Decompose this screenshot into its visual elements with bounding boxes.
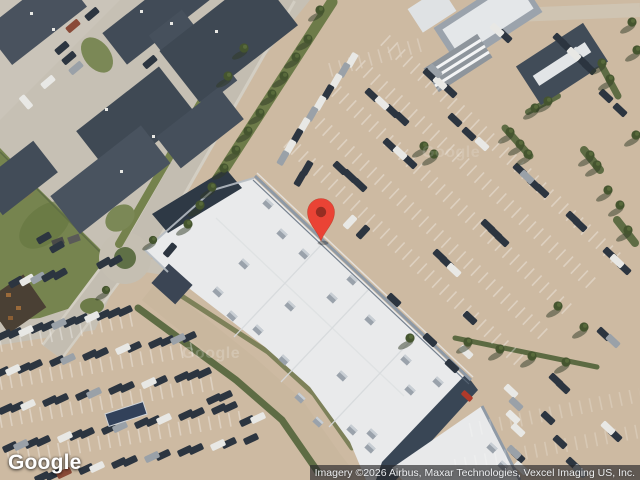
attribution-text: Imagery ©2026 Airbus, Maxar Technologies… [315, 467, 635, 479]
pin-dot [316, 207, 326, 217]
satellite-imagery [0, 0, 640, 480]
google-logo[interactable]: Google [8, 451, 82, 475]
attribution-bar: Imagery ©2026 Airbus, Maxar Technologies… [310, 465, 640, 480]
map-view[interactable]: Google Google Google Imagery ©2026 Airbu… [0, 0, 640, 480]
